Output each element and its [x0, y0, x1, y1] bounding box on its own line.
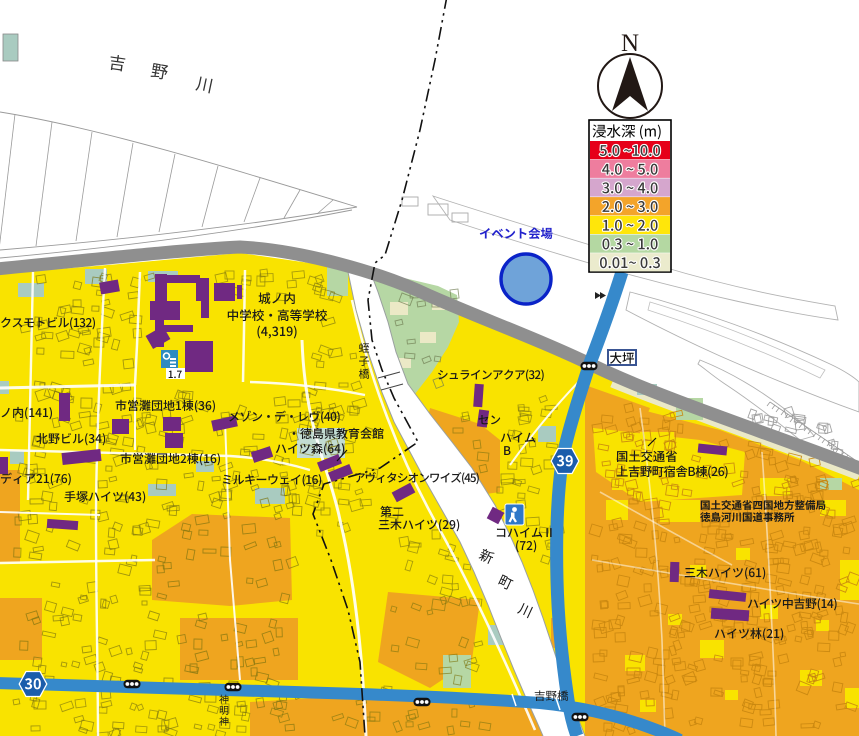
svg-text:N: N	[621, 30, 639, 57]
